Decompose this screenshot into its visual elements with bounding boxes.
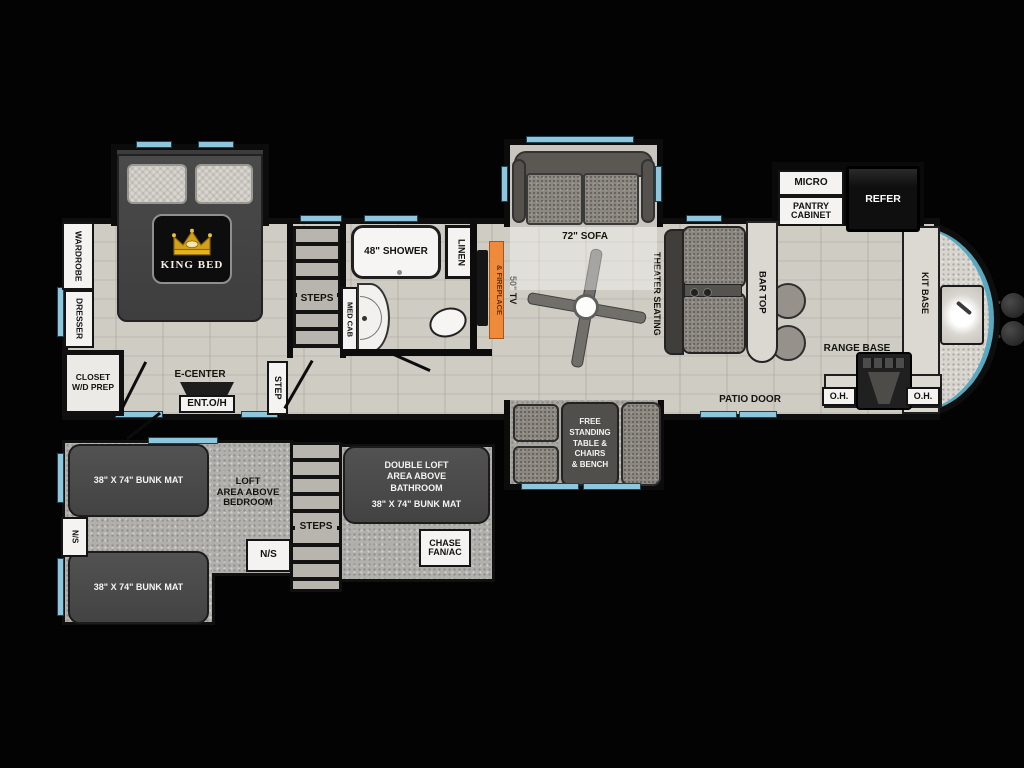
entertainment-center-icon: [180, 382, 234, 395]
pillow-right: [195, 164, 253, 204]
sofa-cushion-left: [526, 173, 583, 225]
dinette-table-label: FREE STANDING TABLE & CHAIRS & BENCH: [569, 417, 610, 471]
theater-seat-back: [664, 229, 684, 355]
shower-drain-icon: [397, 270, 402, 275]
pantry-cabinet-box: PANTRY CABINET: [778, 196, 844, 226]
theater-console: [684, 284, 742, 297]
kit-base-label: KIT BASE: [914, 258, 930, 328]
double-loft-label: DOUBLE LOFT AREA ABOVE BATHROOM: [385, 460, 449, 494]
range-hood: [864, 372, 904, 404]
loft-area-label: LOFT AREA ABOVE BEDROOM: [206, 477, 290, 509]
kitchen-sink: [940, 285, 984, 345]
closet-label: CLOSET W/D PREP: [72, 373, 114, 392]
sofa-label: 72" SOFA: [540, 231, 630, 242]
nightstand-left: N/S: [61, 517, 88, 557]
sofa-slide-window-right: [655, 166, 662, 202]
top-window-steps: [300, 215, 342, 222]
sofa-slide-window-left: [501, 166, 508, 202]
dinette-table: FREE STANDING TABLE & CHAIRS & BENCH: [561, 402, 619, 486]
floorplan-canvas: KIT BASE MICRO PANTRY CABINET REFER RANG…: [0, 0, 1024, 768]
top-window-theater: [686, 215, 722, 222]
patio-door-pane-left: [700, 411, 737, 418]
sofa-slide-window-top: [526, 136, 634, 143]
theater-seat-bottom: [682, 292, 746, 354]
dinette-chair-top: [513, 404, 559, 442]
bar-top-counter: BAR TOP: [746, 221, 778, 363]
overhead-cabinet-left: O.H.: [822, 387, 856, 406]
closet-room: CLOSET W/D PREP: [62, 350, 124, 416]
crown-icon: [169, 227, 215, 257]
bed-slide-window-left: [136, 141, 172, 148]
ent-overhead-box: ENT.O/H: [179, 395, 235, 413]
shower-label: 48" SHOWER: [364, 246, 428, 257]
e-center-label: E-CENTER: [165, 369, 235, 380]
propane-tank-bottom: [1000, 320, 1024, 347]
bunk-mat-bottom: 38" X 74" BUNK MAT: [68, 551, 209, 624]
sofa-cushion-right: [583, 173, 639, 225]
loft-left-window-bottom: [57, 558, 64, 616]
shower: 48" SHOWER: [351, 225, 441, 279]
vanity-faucet: [362, 316, 367, 321]
theater-seat-top: [682, 226, 746, 288]
bedroom-side-window: [57, 287, 64, 337]
cupholder-icon: [690, 288, 699, 297]
bunk-mat-bottom-label: 38" X 74" BUNK MAT: [94, 582, 183, 593]
double-loft-bunk: DOUBLE LOFT AREA ABOVE BATHROOM 38" X 74…: [343, 446, 490, 524]
patio-door-pane-right: [739, 411, 777, 418]
bunk-mat-top: 38" X 74" BUNK MAT: [68, 444, 209, 517]
bedroom-steps: STEPS: [293, 226, 341, 348]
range-burners: [863, 358, 905, 368]
dinette-slide-window-left: [521, 483, 579, 490]
king-bed-crest: KING BED: [152, 214, 232, 284]
double-loft-bunk-label: 38" X 74" BUNK MAT: [372, 499, 461, 510]
loft-left-window-top: [57, 453, 64, 503]
wardrobe-box: WARDROBE: [62, 222, 94, 290]
refrigerator-box: REFER: [846, 166, 920, 232]
patio-door-label: PATIO DOOR: [710, 394, 790, 405]
range-icon: [856, 352, 912, 410]
microwave-box: MICRO: [778, 170, 844, 196]
med-cab-box: MED CAB: [341, 287, 358, 351]
chase-fan-ac-box: CHASE FAN/AC: [419, 529, 471, 567]
sofa-slideout: [504, 139, 663, 227]
top-window-bath: [364, 215, 418, 222]
loft-steps: STEPS: [290, 442, 342, 592]
dresser-box: DRESSER: [64, 290, 94, 348]
sofa-arm-left: [512, 159, 526, 223]
overhead-cabinet-right: O.H.: [906, 387, 940, 406]
tv-icon: [477, 250, 488, 326]
loft-steps-label: STEPS: [295, 521, 337, 532]
refrigerator-label: REFER: [865, 193, 901, 205]
dinette-chair-bottom: [513, 446, 559, 484]
dinette-bench: [621, 402, 661, 486]
bed-slide-window-right: [198, 141, 234, 148]
loft-top-window: [148, 437, 218, 444]
sofa-arm-right: [641, 159, 655, 223]
bedroom-steps-label: STEPS: [297, 293, 337, 304]
bar-top-label: BAR TOP: [757, 271, 768, 314]
bunk-mat-top-label: 38" X 74" BUNK MAT: [94, 475, 183, 486]
fan-hub: [571, 292, 601, 322]
pillow-left: [127, 164, 187, 204]
king-bed-label: KING BED: [161, 259, 224, 271]
cupholder-icon: [703, 288, 712, 297]
bathroom-right-wall: [470, 221, 477, 355]
dinette-slide-window-right: [583, 483, 641, 490]
nightstand-middle: N/S: [246, 539, 291, 572]
fireplace-label: & FIREPLACE: [490, 245, 503, 335]
propane-tank-top: [1000, 292, 1024, 319]
bathroom-south-wall: [340, 349, 492, 356]
